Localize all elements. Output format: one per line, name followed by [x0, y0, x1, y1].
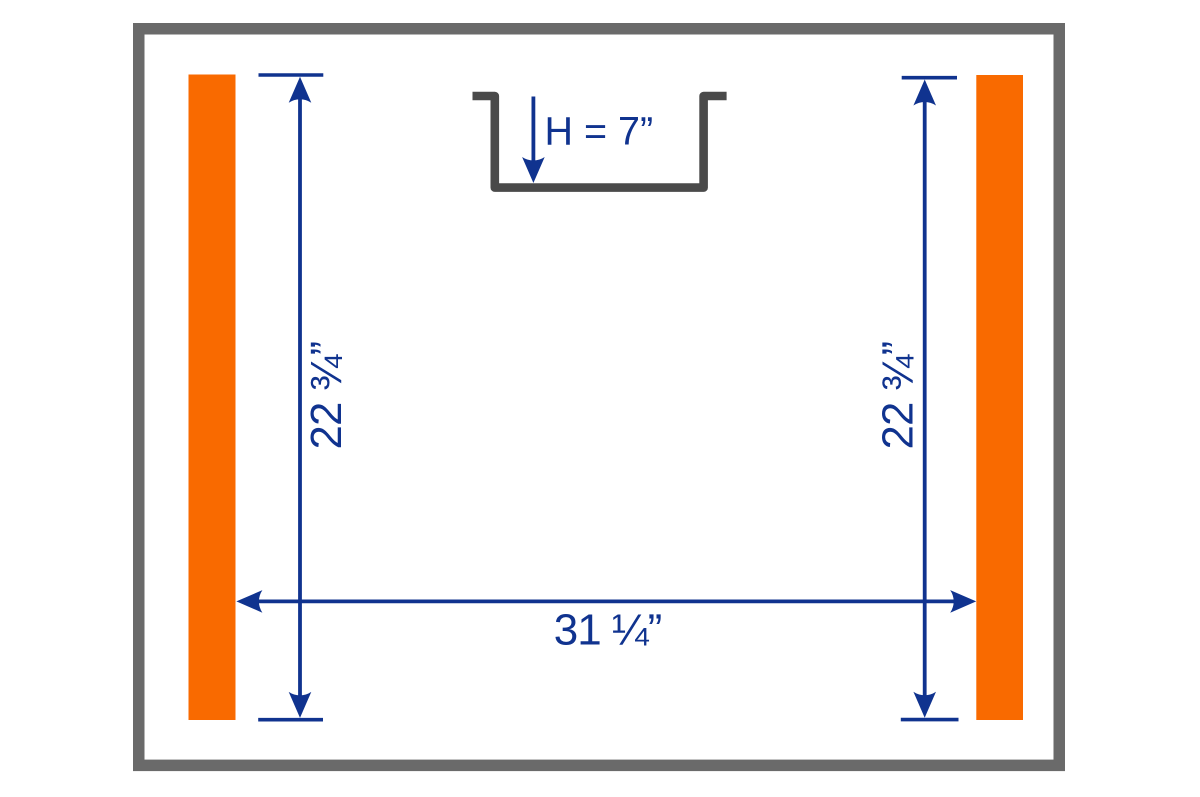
svg-text:H = 7”: H = 7” [545, 109, 654, 153]
svg-text:22 ¾”: 22 ¾” [875, 342, 923, 450]
svg-text:22 ¾”: 22 ¾” [303, 342, 351, 450]
svg-text:31 ¼”: 31 ¼” [554, 605, 662, 654]
